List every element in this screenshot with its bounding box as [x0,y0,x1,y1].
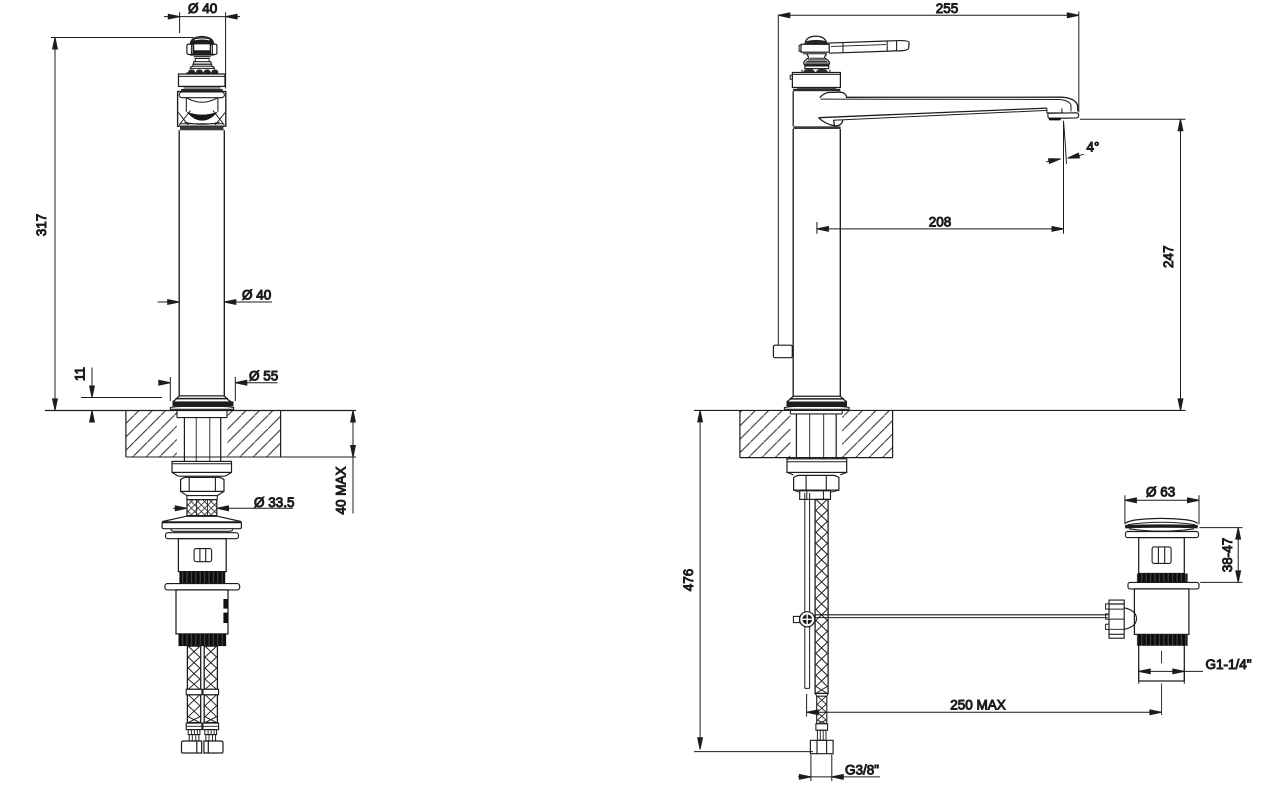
svg-text:208: 208 [929,214,952,229]
svg-text:317: 317 [34,214,49,237]
svg-text:255: 255 [936,1,959,16]
svg-text:Ø 63: Ø 63 [1146,485,1175,500]
svg-text:40 MAX: 40 MAX [334,466,349,514]
svg-text:Ø 40: Ø 40 [188,1,217,16]
svg-text:476: 476 [681,569,696,592]
svg-text:Ø 40: Ø 40 [242,288,271,303]
svg-text:Ø 33.5: Ø 33.5 [254,495,295,510]
svg-text:247: 247 [1161,245,1176,268]
svg-text:G1-1/4": G1-1/4" [1206,657,1252,672]
svg-text:Ø 55: Ø 55 [249,368,278,383]
svg-text:250 MAX: 250 MAX [950,697,1006,712]
svg-text:11: 11 [73,367,88,381]
svg-text:38-47: 38-47 [1220,538,1235,573]
svg-text:G3/8": G3/8" [845,762,879,777]
svg-text:4°: 4° [1087,140,1100,155]
